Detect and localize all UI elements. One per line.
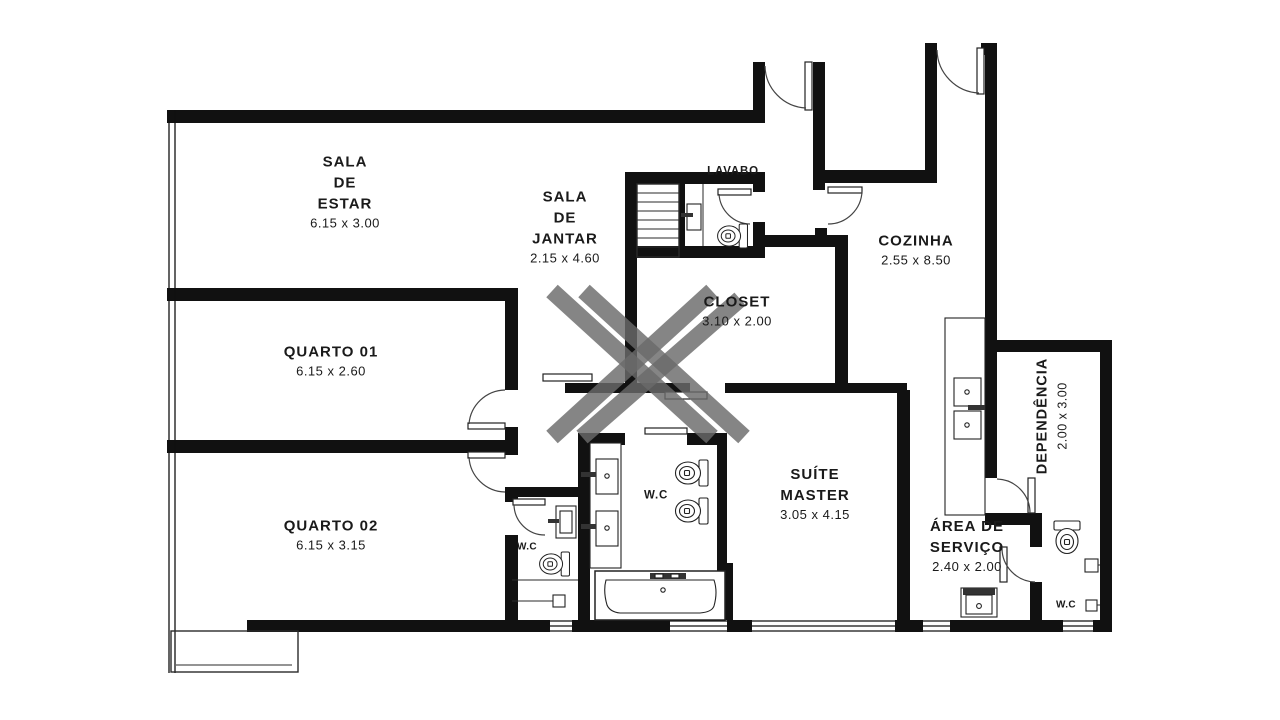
room-label-sala-de-estar: SALA DE ESTAR 6.15 x 3.00 [310, 152, 380, 233]
room-name: ESTAR [310, 194, 380, 215]
room-dimensions: 2.40 x 2.00 [930, 558, 1004, 576]
window [1063, 621, 1093, 631]
floor-plan-drawing [0, 0, 1280, 720]
room-name: JANTAR [530, 229, 600, 250]
wall-segment [717, 433, 727, 563]
door-swing [468, 390, 505, 429]
room-name: DE [530, 208, 600, 229]
window [670, 621, 727, 631]
room-name: COZINHA [878, 231, 953, 252]
wall-segment [247, 620, 550, 632]
window [923, 621, 950, 631]
room-label-area-de-servico: ÁREA DE SERVIÇO 2.40 x 2.00 [930, 516, 1004, 576]
room-name: W.C [517, 542, 537, 553]
wall-segment [167, 440, 505, 453]
room-dimensions: 3.05 x 4.15 [780, 506, 850, 524]
room-name: CLOSET [702, 292, 772, 313]
room-label-quarto-01: QUARTO 01 6.15 x 2.60 [284, 342, 379, 381]
hallwc-sink-icon [548, 506, 576, 538]
wall-segment [725, 383, 907, 393]
room-name: SUÍTE [780, 464, 850, 485]
master-bidet-icon [676, 498, 709, 524]
room-label-wc-servico: W.C [1056, 600, 1076, 611]
door-swing [997, 478, 1035, 513]
door-swing [718, 189, 751, 224]
wall-segment [825, 170, 937, 183]
wall-segment [1030, 582, 1042, 620]
wall-segment [727, 620, 752, 632]
wall-segment [985, 43, 997, 352]
wall-segment [505, 487, 590, 497]
wall-segment [985, 352, 997, 478]
wall-segment [815, 228, 827, 235]
laundry-tank-icon [961, 588, 997, 617]
room-label-wc-master: W.C [644, 490, 668, 503]
room-name: DEPENDÊNCIA [1033, 358, 1054, 475]
wall-segment [950, 620, 1063, 632]
door-opening-lintel [645, 428, 687, 434]
room-name: LAVABO [707, 166, 759, 179]
room-label-quarto-02: QUARTO 02 6.15 x 3.15 [284, 516, 379, 555]
room-dimensions: 2.15 x 4.60 [530, 250, 600, 268]
room-name: W.C [644, 490, 668, 503]
master-toilet-icon [676, 460, 709, 486]
window [550, 621, 572, 631]
balcony-outline [171, 631, 298, 672]
shower-drain-icon [1085, 559, 1100, 572]
door-swing [937, 48, 984, 94]
room-label-closet: CLOSET 3.10 x 2.00 [702, 292, 772, 331]
door-swing [468, 452, 505, 492]
room-name: SALA [310, 152, 380, 173]
room-label-suite-master: SUÍTE MASTER 3.05 x 4.15 [780, 464, 850, 524]
room-dimensions: 2.55 x 8.50 [878, 252, 953, 270]
wall-segment [925, 43, 937, 183]
door-swing [513, 499, 545, 535]
room-dimensions: 2.00 x 3.00 [1054, 358, 1072, 475]
floor-plan-canvas: SALA DE ESTAR 6.15 x 3.00 SALA DE JANTAR… [0, 0, 1280, 720]
lavabo-toilet-icon [718, 224, 748, 248]
room-label-sala-de-jantar: SALA DE JANTAR 2.15 x 4.60 [530, 187, 600, 268]
room-name: ÁREA DE [930, 516, 1004, 537]
wall-segment [985, 340, 1112, 352]
window [752, 621, 895, 631]
room-dimensions: 3.10 x 2.00 [702, 313, 772, 331]
bathtub-icon [595, 571, 725, 620]
wall-segment [753, 184, 765, 192]
door-swing [828, 187, 862, 224]
wall-segment [505, 427, 518, 455]
door-swing [765, 62, 812, 110]
room-dimensions: 6.15 x 3.00 [310, 215, 380, 233]
room-dimensions: 6.15 x 2.60 [284, 363, 379, 381]
shower-drain-icon [1086, 600, 1100, 611]
room-name: QUARTO 01 [284, 342, 379, 363]
wall-segment [813, 62, 825, 190]
wall-segment [895, 620, 923, 632]
room-name: SALA [530, 187, 600, 208]
room-label-cozinha: COZINHA 2.55 x 8.50 [878, 231, 953, 270]
wall-segment [167, 110, 765, 123]
wall-segment [897, 390, 910, 620]
wall-segment [167, 288, 518, 301]
wall-segment [505, 288, 518, 390]
wall-segment [835, 235, 848, 383]
wall-segment [1093, 620, 1112, 632]
servicewc-toilet-icon [1054, 521, 1080, 554]
hallwc-toilet-icon [540, 552, 570, 576]
kitchen-counter-icon [945, 318, 985, 515]
wall-segment [1100, 340, 1112, 632]
wall-segment [753, 62, 765, 123]
door-swing [1000, 547, 1035, 582]
window [169, 110, 175, 673]
room-name: QUARTO 02 [284, 516, 379, 537]
wall-segment [753, 222, 765, 258]
wall-segment [1030, 513, 1042, 547]
shower-drain-icon [512, 595, 565, 607]
room-dimensions: 6.15 x 3.15 [284, 537, 379, 555]
room-name: SERVIÇO [930, 537, 1004, 558]
room-label-wc-hall: W.C [517, 542, 537, 553]
room-name: W.C [1056, 600, 1076, 611]
room-label-lavabo: LAVABO [707, 166, 759, 179]
room-name: MASTER [780, 485, 850, 506]
room-name: DE [310, 173, 380, 194]
room-label-dependencia: DEPENDÊNCIA 2.00 x 3.00 [1033, 358, 1072, 475]
